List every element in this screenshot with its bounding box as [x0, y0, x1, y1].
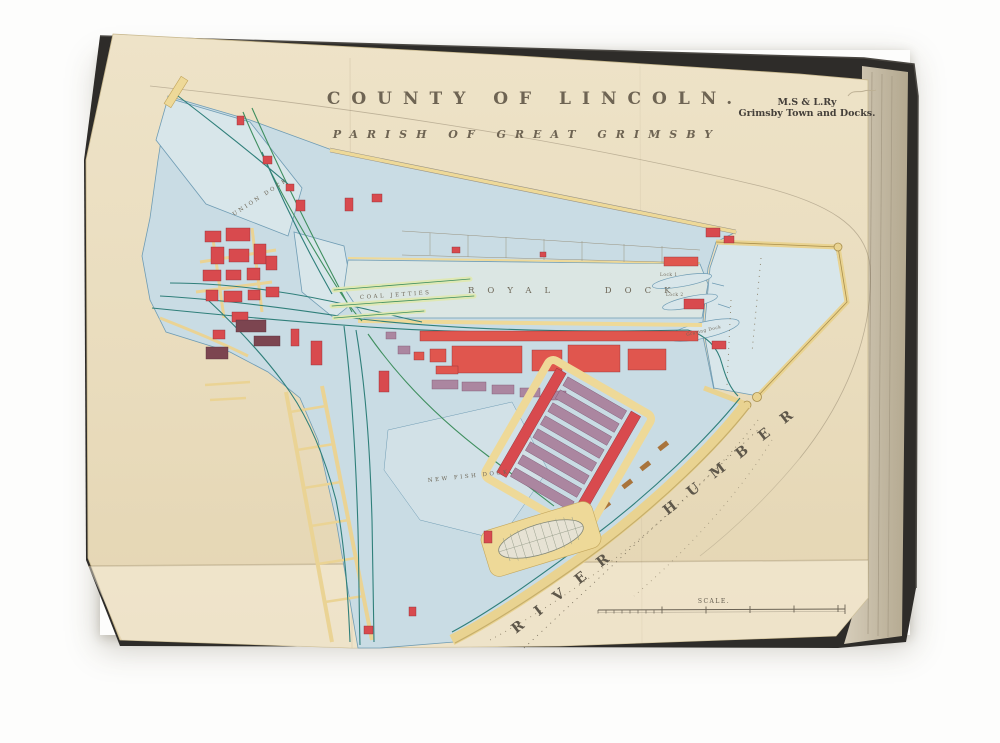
map-subtitle: PARISH OF GREAT GRIMSBY [332, 128, 721, 141]
railway-caption-line2: Grimsby Town and Docks. [739, 108, 876, 119]
map-title: COUNTY OF LINCOLN. [327, 89, 743, 109]
railway-caption-line1: M.S & L.Ry [777, 97, 837, 108]
photograph-of-atlas-map: COUNTY OF LINCOLN. PARISH OF GREAT GRIMS… [0, 0, 1000, 743]
slipway-building [484, 531, 492, 543]
royal-dock-label: ROYAL DOCK [468, 286, 683, 296]
lock-2-label: Lock 2 [666, 293, 684, 298]
lock-1-label: Lock 1 [660, 273, 678, 278]
map-artwork: COUNTY OF LINCOLN. PARISH OF GREAT GRIMS… [0, 0, 1000, 743]
scale-label: SCALE. [698, 598, 730, 605]
